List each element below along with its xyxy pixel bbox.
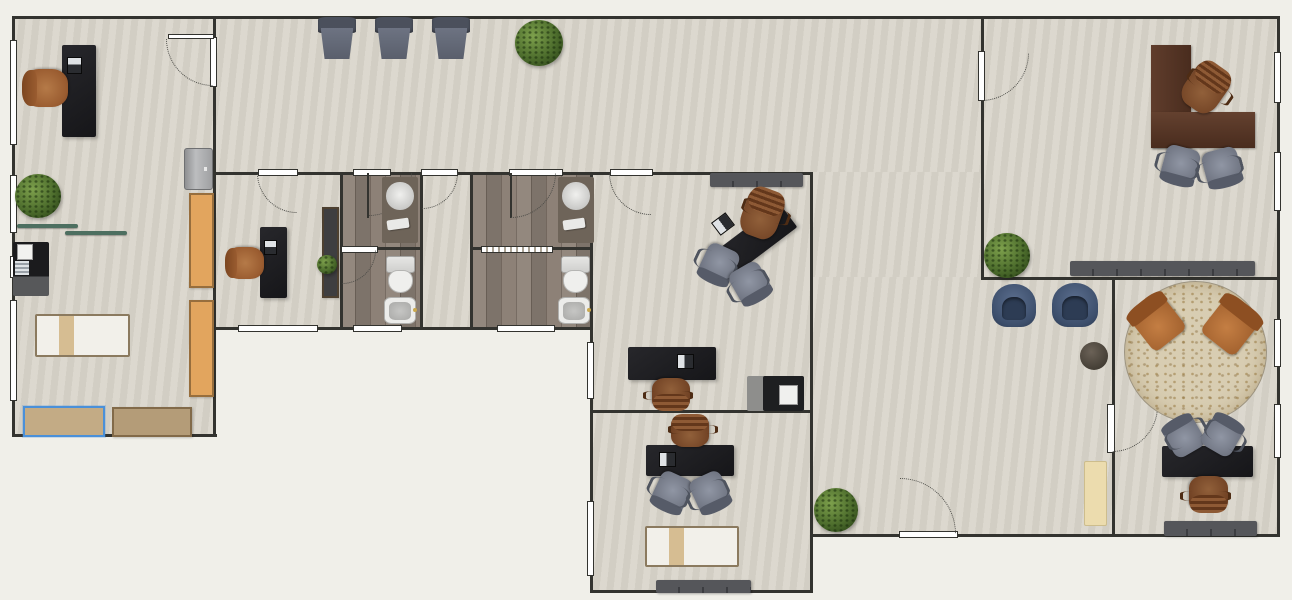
sideboard[interactable] xyxy=(710,173,803,187)
desk[interactable] xyxy=(260,227,287,298)
laptop[interactable] xyxy=(264,240,277,255)
office-chair[interactable] xyxy=(26,69,68,107)
sideboard[interactable] xyxy=(1164,521,1257,536)
window[interactable] xyxy=(353,325,402,332)
plant[interactable] xyxy=(515,20,563,66)
toilet[interactable] xyxy=(559,256,590,292)
executive-chair[interactable] xyxy=(652,378,690,409)
tub-chair[interactable] xyxy=(1052,283,1098,327)
storage-cabinet[interactable] xyxy=(322,207,339,298)
floor-plan xyxy=(0,0,1292,600)
vanity-sink[interactable] xyxy=(558,177,594,243)
laptop[interactable] xyxy=(659,452,676,467)
wall-shelf[interactable] xyxy=(17,224,78,228)
window[interactable] xyxy=(587,501,594,576)
bidet[interactable] xyxy=(558,297,590,324)
exam-bed[interactable] xyxy=(645,526,739,567)
sliding-door-bathroom-2[interactable] xyxy=(481,246,553,253)
window[interactable] xyxy=(1274,152,1281,211)
plant[interactable] xyxy=(984,233,1030,278)
recliner-chair[interactable] xyxy=(375,17,413,59)
bidet[interactable] xyxy=(384,297,416,324)
laptop[interactable] xyxy=(67,57,82,74)
plant[interactable] xyxy=(814,488,858,532)
kitchenette[interactable] xyxy=(13,242,49,296)
wall xyxy=(470,172,473,330)
window[interactable] xyxy=(497,325,555,332)
wall xyxy=(810,172,813,593)
vanity-sink[interactable] xyxy=(382,177,418,243)
recliner-chair[interactable] xyxy=(432,17,470,59)
desk[interactable] xyxy=(628,347,716,380)
window[interactable] xyxy=(1274,52,1281,103)
floor-mat[interactable] xyxy=(1084,461,1107,526)
tub-chair[interactable] xyxy=(992,284,1036,327)
side-table[interactable] xyxy=(1080,342,1108,370)
office-chair[interactable] xyxy=(228,247,264,279)
tall-cabinet[interactable] xyxy=(189,300,214,397)
door-treatment-room-leaf xyxy=(168,34,214,39)
plant[interactable] xyxy=(15,174,61,218)
sideboard[interactable] xyxy=(1070,261,1255,276)
window[interactable] xyxy=(10,300,17,401)
printer[interactable] xyxy=(747,376,804,411)
room-hallway-south xyxy=(812,172,981,278)
tall-cabinet[interactable] xyxy=(189,193,214,288)
window[interactable] xyxy=(1274,319,1281,367)
executive-chair[interactable] xyxy=(1189,476,1228,511)
executive-chair[interactable] xyxy=(671,416,709,447)
cabinet-selected[interactable] xyxy=(23,406,105,437)
window[interactable] xyxy=(238,325,318,332)
wall-shelf[interactable] xyxy=(65,231,127,235)
exam-bed[interactable] xyxy=(35,314,130,357)
toilet[interactable] xyxy=(384,256,415,292)
recliner-chair[interactable] xyxy=(318,17,356,59)
door-bathroom-1-leaf xyxy=(367,173,369,218)
window[interactable] xyxy=(587,342,594,399)
cabinet[interactable] xyxy=(112,407,192,437)
laptop[interactable] xyxy=(677,354,694,369)
wall xyxy=(12,16,1278,19)
window[interactable] xyxy=(1274,404,1281,458)
small-plant[interactable] xyxy=(317,255,337,274)
mini-fridge[interactable] xyxy=(184,148,213,190)
sideboard[interactable] xyxy=(656,580,751,593)
wall xyxy=(981,277,1280,280)
window[interactable] xyxy=(10,40,17,145)
